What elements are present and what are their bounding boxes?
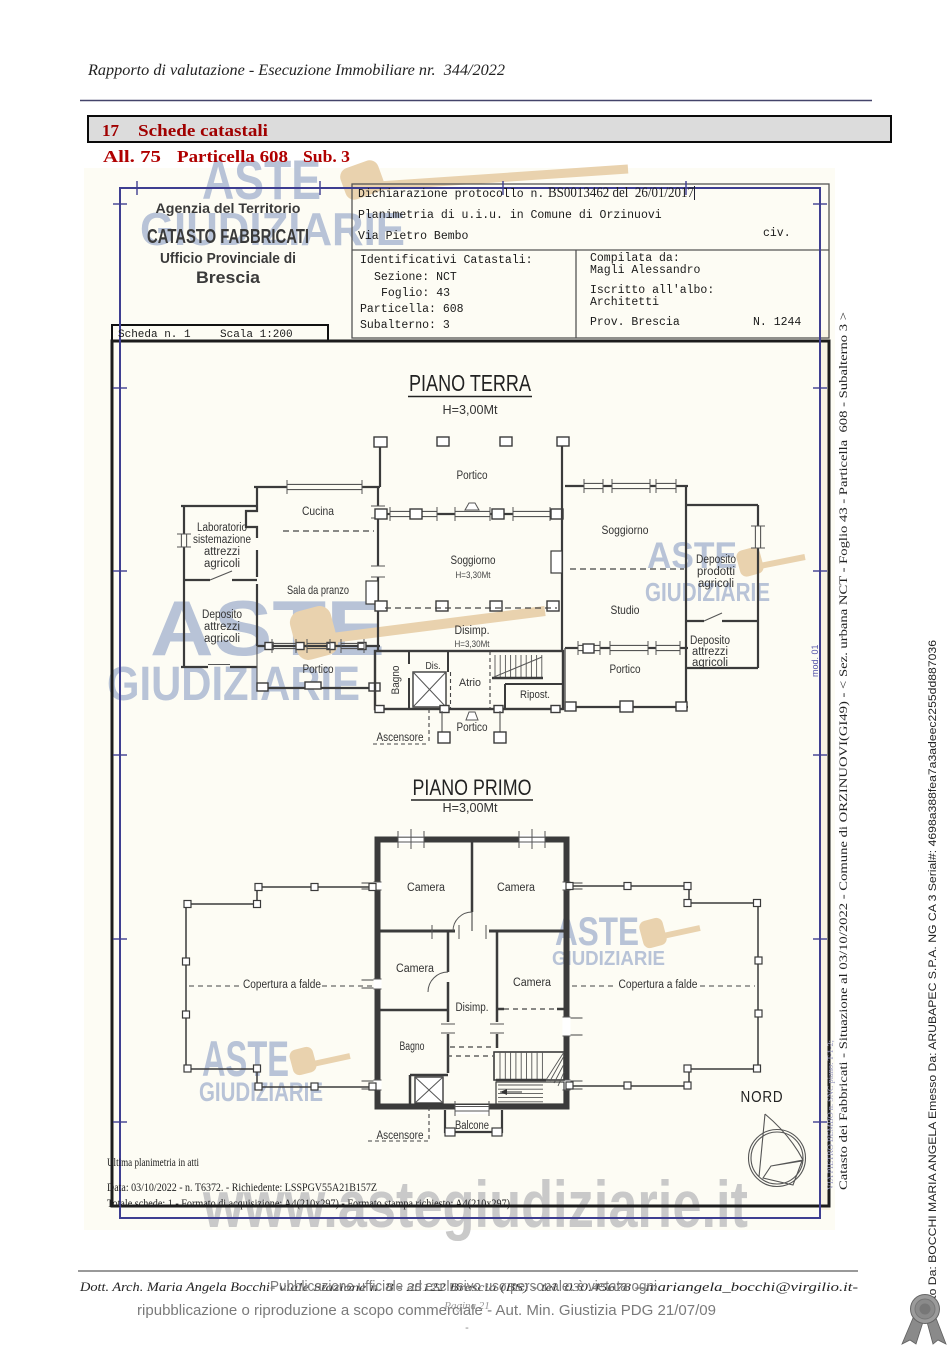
svg-text:PIANO PRIMO: PIANO PRIMO [413, 775, 532, 800]
svg-text:-mariangela_bocchi@virgilio.it: -mariangela_bocchi@virgilio.it- [640, 1279, 858, 1294]
svg-text:Identificativi Catastali:: Identificativi Catastali: [360, 254, 533, 267]
svg-text:Subalterno: 3: Subalterno: 3 [360, 319, 450, 332]
svg-text:Scala 1:200: Scala 1:200 [220, 329, 293, 341]
svg-text:Camera: Camera [407, 882, 446, 894]
svg-text:Camera: Camera [396, 963, 435, 975]
svg-text:Ripost.: Ripost. [520, 689, 550, 701]
svg-text:Copertura a falde: Copertura a falde [243, 979, 321, 991]
svg-text:Deposito: Deposito [202, 609, 242, 621]
svg-text:attrezzi: attrezzi [204, 621, 240, 633]
svg-text:Laboratorio: Laboratorio [197, 522, 247, 534]
svg-text:Firmato Da: BOCCHI MARIA ANGEL: Firmato Da: BOCCHI MARIA ANGELA Emesso D… [927, 640, 939, 1330]
svg-text:H=3,30Mt: H=3,30Mt [455, 639, 490, 650]
svg-text:agricoli: agricoli [698, 578, 734, 590]
svg-text:NORD: NORD [741, 1089, 784, 1106]
svg-text:Ufficio Provinciale di: Ufficio Provinciale di [160, 250, 296, 267]
svg-text:Sala da pranzo: Sala da pranzo [287, 583, 349, 597]
svg-text:H=3,00Mt: H=3,00Mt [443, 800, 498, 815]
svg-text:Scheda n. 1: Scheda n. 1 [118, 329, 191, 341]
svg-text:Disimp.: Disimp. [456, 1002, 489, 1014]
svg-text:Camera: Camera [513, 977, 552, 989]
svg-text:Portico: Portico [457, 722, 488, 734]
svg-text:17: 17 [102, 121, 120, 140]
svg-text:Cucina: Cucina [302, 504, 334, 518]
svg-text:Foglio: 43: Foglio: 43 [381, 287, 450, 300]
svg-text:agricoli: agricoli [692, 657, 728, 669]
svg-text:Studio: Studio [611, 603, 640, 617]
svg-text:Dott. Arch. Maria Angela Bocch: Dott. Arch. Maria Angela Bocchi [79, 1279, 271, 1294]
svg-text:Portico: Portico [610, 664, 641, 676]
svg-text:Bagno: Bagno [400, 1041, 425, 1053]
svg-text:Ascensore: Ascensore [377, 732, 424, 744]
svg-text:H=3,30Mt: H=3,30Mt [456, 570, 491, 581]
svg-text:Agenzia del Territorio: Agenzia del Territorio [156, 201, 301, 216]
svg-text:Architetti: Architetti [590, 296, 659, 309]
svg-text:Copertura a falde: Copertura a falde [619, 979, 698, 991]
svg-text:ripubblicazione o riproduzione: ripubblicazione o riproduzione a scopo c… [137, 1303, 716, 1319]
svg-text:GIUDIZIARIE: GIUDIZIARIE [199, 1077, 323, 1107]
svg-text:N. 1244: N. 1244 [753, 316, 801, 329]
svg-text:Soggiorno: Soggiorno [451, 553, 496, 567]
svg-text:Soggiorno: Soggiorno [602, 523, 649, 537]
svg-text:PIANO TERRA: PIANO TERRA [409, 370, 532, 396]
svg-text:civ.: civ. [763, 227, 791, 240]
svg-text:Atrio: Atrio [459, 677, 481, 689]
svg-text:prodotti: prodotti [697, 566, 735, 578]
svg-text:mod. 01: mod. 01 [810, 644, 820, 677]
svg-text:Catasto dei Fabbricati - Situa: Catasto dei Fabbricati - Situazione al 0… [838, 312, 850, 1190]
svg-text:Magli Alessandro: Magli Alessandro [590, 264, 701, 277]
svg-text:Ultima planimetria in atti: Ultima planimetria in atti [107, 1157, 199, 1169]
svg-text:Pubblicazione ufficiale ad esc: Pubblicazione ufficiale ad esclusivo uso… [270, 1279, 657, 1295]
svg-text:Portico: Portico [303, 664, 334, 676]
svg-text:All. 75: All. 75 [103, 147, 161, 166]
svg-text:Brescia: Brescia [196, 268, 261, 287]
svg-text:sistemazione: sistemazione [193, 534, 251, 546]
svg-text:Data: 03/10/2022 - n. T6372. -: Data: 03/10/2022 - n. T6372. - Richieden… [107, 1182, 377, 1194]
svg-text:Portico: Portico [457, 470, 488, 482]
svg-text:Dichiarazione protocollo n.: Dichiarazione protocollo n. [358, 188, 544, 201]
svg-text:Prov. Brescia: Prov. Brescia [590, 316, 680, 329]
svg-text:Particella 608: Particella 608 [177, 147, 288, 166]
svg-text:Via Pietro Bembo: Via Pietro Bembo [358, 230, 469, 243]
svg-text:agricoli: agricoli [204, 558, 240, 570]
svg-text:VIA PIETRO BEMBO n. SNC piano:: VIA PIETRO BEMBO n. SNC piano: T-1-2; [826, 1040, 835, 1190]
svg-text:Sezione: NCT: Sezione: NCT [374, 271, 457, 284]
svg-text:Balcone: Balcone [455, 1120, 489, 1132]
svg-text:Deposito: Deposito [696, 554, 736, 566]
svg-text:Sub. 3: Sub. 3 [303, 147, 350, 166]
svg-text:-: - [465, 1322, 469, 1334]
svg-text:Particella: 608: Particella: 608 [360, 303, 464, 316]
svg-text:Schede catastali: Schede catastali [138, 121, 268, 140]
svg-text:Bagno: Bagno [390, 666, 402, 695]
svg-text:Dis.: Dis. [426, 660, 441, 672]
svg-text:Planimetria di u.i.u. in Comun: Planimetria di u.i.u. in Comune di Orzin… [358, 209, 662, 222]
svg-text:CATASTO FABBRICATI: CATASTO FABBRICATI [147, 226, 309, 248]
svg-text:attrezzi: attrezzi [204, 546, 240, 558]
svg-text:agricoli: agricoli [204, 633, 240, 645]
svg-text:Disimp.: Disimp. [455, 625, 490, 637]
svg-text:BS0013462 del 26/01/2017: BS0013462 del 26/01/2017 [548, 185, 694, 201]
svg-text:Ascensore: Ascensore [377, 1130, 424, 1142]
svg-text:Rapporto di valutazione - Esec: Rapporto di valutazione - Esecuzione Imm… [87, 62, 505, 79]
svg-text:Camera: Camera [497, 882, 536, 894]
svg-text:H=3,00Mt: H=3,00Mt [443, 402, 498, 417]
svg-text:Totale schede: 1 - Formato di: Totale schede: 1 - Formato di acquisizio… [107, 1198, 510, 1210]
